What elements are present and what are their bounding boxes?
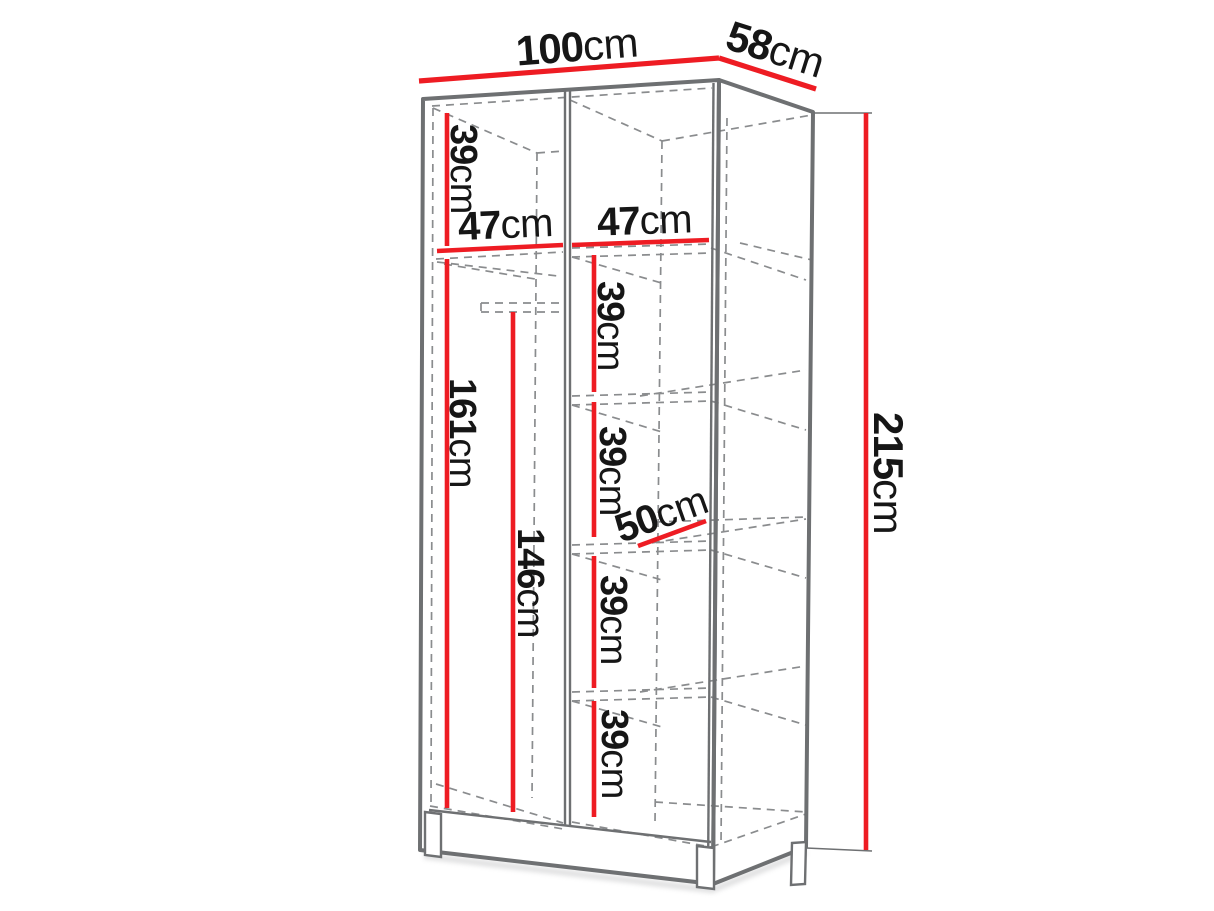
dim-label-shelf-gap-4: 39cm	[593, 709, 635, 799]
cabinet-side-face	[713, 80, 813, 884]
wardrobe-dimension-diagram-page: 100cm 58cm 215cm 39cm 47cm 47cm 161cm 14…	[0, 0, 1214, 911]
height-tick-bottom	[806, 848, 872, 851]
dim-label-shelf-gap-2: 39cm	[591, 426, 633, 516]
dim-label-hanging-section-height: 161cm	[441, 378, 483, 488]
dim-label-right-section-width: 47cm	[596, 197, 692, 244]
wardrobe-dimension-diagram: 100cm 58cm 215cm 39cm 47cm 47cm 161cm 14…	[0, 0, 1214, 911]
dim-label-top-section-height: 39cm	[442, 124, 484, 214]
right-front-foot	[697, 846, 714, 889]
dim-label-shelf-gap-1: 39cm	[589, 281, 631, 371]
dim-label-shelf-gap-3: 39cm	[592, 575, 634, 665]
back-foot	[791, 842, 806, 885]
left-foot	[425, 812, 441, 857]
dim-label-overall-height: 215cm	[865, 412, 912, 534]
dim-label-left-section-width: 47cm	[457, 201, 554, 249]
dim-label-overall-width: 100cm	[514, 18, 639, 74]
dim-label-rail-clearance-height: 146cm	[509, 528, 551, 638]
dimension-ticks	[806, 113, 872, 851]
